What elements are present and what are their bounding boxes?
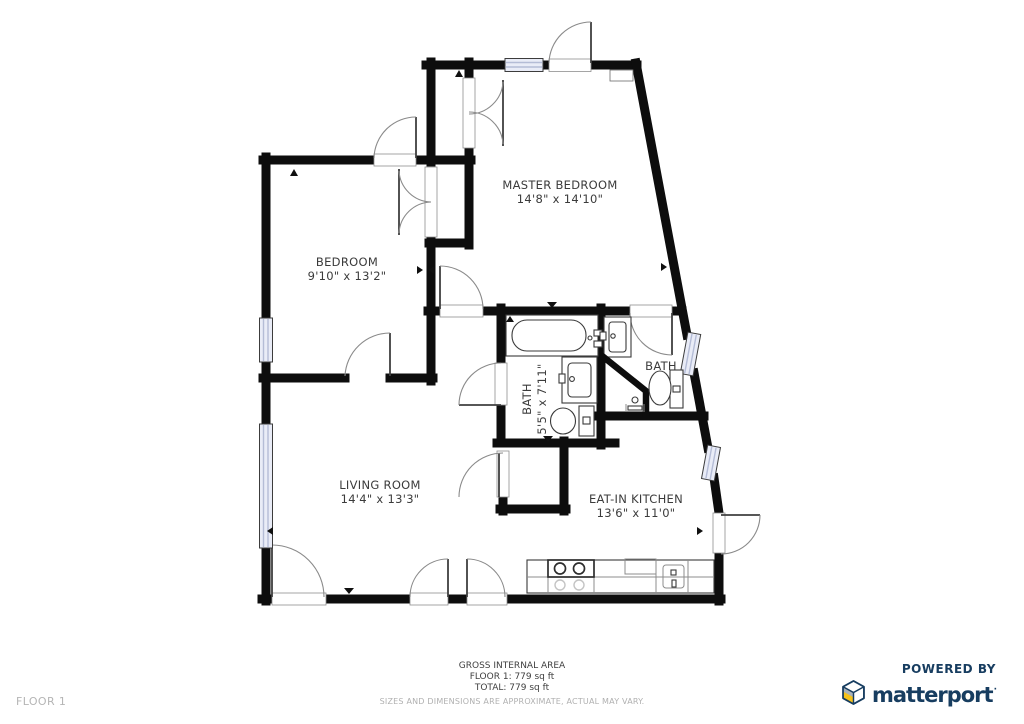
ensuite-bath-door xyxy=(630,313,672,355)
matterport-branding: POWERED BY matterport· xyxy=(841,662,996,707)
shower-valve xyxy=(626,397,644,412)
bedroom-hall-door xyxy=(374,117,416,158)
master-bedroom-label: MASTER BEDROOM xyxy=(502,178,617,192)
bath-toilet xyxy=(551,406,595,436)
kitchen-dims: 13'6" x 11'0" xyxy=(597,506,676,520)
kitchen-counter xyxy=(527,559,714,593)
wall-notch xyxy=(610,70,633,81)
floorplan-page: MASTER BEDROOM 14'8" x 14'10" BEDROOM 9'… xyxy=(0,0,1024,724)
entry-door-top xyxy=(549,22,591,63)
matterport-wordmark: matterport· xyxy=(872,678,996,707)
walls xyxy=(262,62,721,601)
living-room-label: LIVING ROOM xyxy=(339,478,421,492)
bath-sink xyxy=(559,357,597,403)
ensuite-bath-label: BATH xyxy=(645,359,677,373)
master-bedroom-door xyxy=(440,266,483,309)
living-room-door-right xyxy=(467,559,505,597)
powered-by-text: POWERED BY xyxy=(841,662,996,676)
main-bath-label: BATH xyxy=(520,383,534,415)
trademark-mark: · xyxy=(994,685,996,695)
ensuite-sink xyxy=(600,317,631,357)
coat-closet-door xyxy=(459,453,503,497)
living-room-dims: 14'4" x 13'3" xyxy=(341,492,420,506)
bedroom-door xyxy=(345,333,390,376)
bathtub xyxy=(506,315,602,356)
living-room-door-mid xyxy=(410,559,448,597)
ensuite-toilet xyxy=(649,370,683,408)
matterport-cube-icon xyxy=(841,680,866,705)
window-bedroom-left xyxy=(260,318,273,362)
bedroom-label: BEDROOM xyxy=(316,255,378,269)
bedroom-dims: 9'10" x 13'2" xyxy=(308,269,387,283)
kitchen-exterior-door xyxy=(721,515,760,554)
floorplan-drawing: MASTER BEDROOM 14'8" x 14'10" BEDROOM 9'… xyxy=(0,0,1024,724)
kitchen-label: EAT-IN KITCHEN xyxy=(589,492,683,506)
living-room-door-left xyxy=(272,545,324,597)
window-master-top xyxy=(505,59,543,72)
main-bath-dims: 5'5" x 7'11" xyxy=(535,363,549,434)
master-bedroom-dims: 14'8" x 14'10" xyxy=(517,192,603,206)
